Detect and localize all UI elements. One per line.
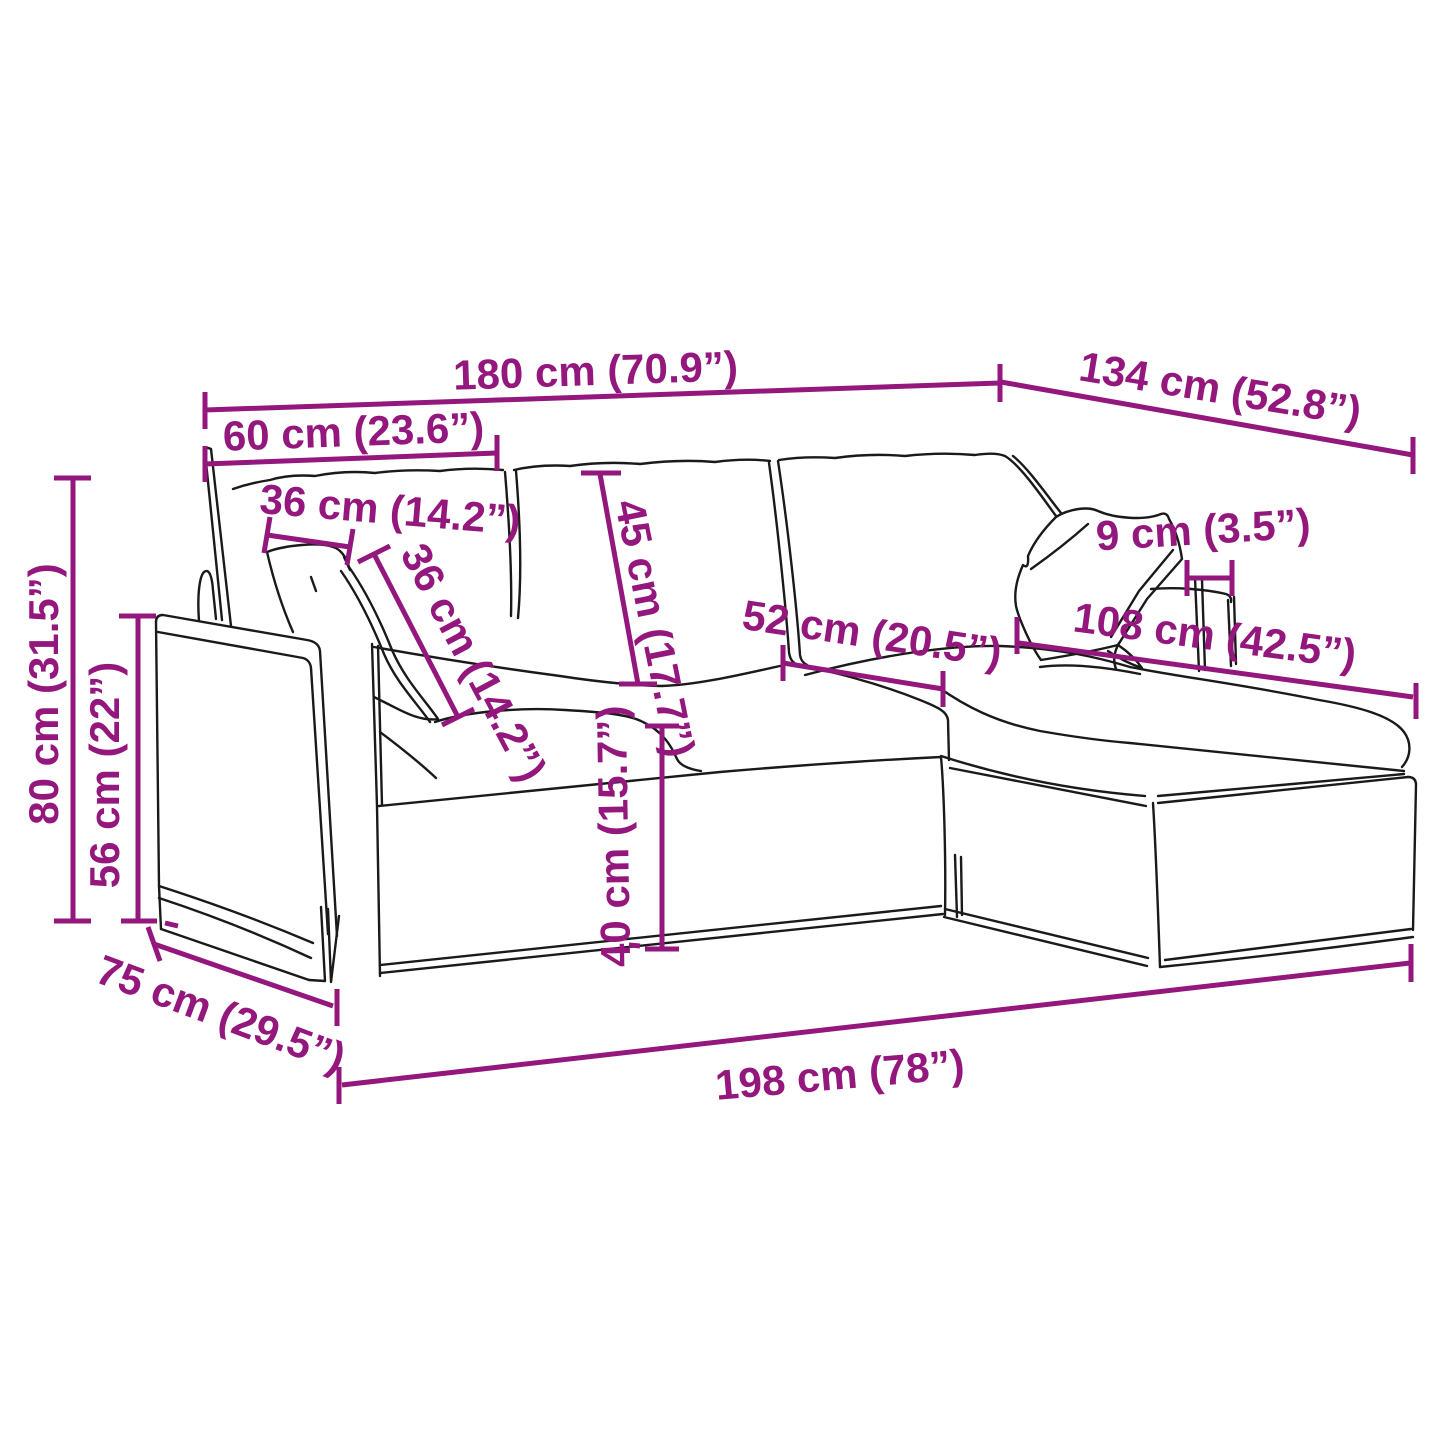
svg-text:80 cm (31.5”): 80 cm (31.5”) [20, 563, 67, 824]
svg-text:60 cm (23.6”): 60 cm (23.6”) [222, 403, 485, 460]
svg-text:198 cm (78”): 198 cm (78”) [713, 1040, 966, 1109]
svg-text:36 cm (14.2”): 36 cm (14.2”) [392, 536, 556, 789]
svg-text:52 cm (20.5”): 52 cm (20.5”) [739, 591, 1005, 676]
svg-text:40 cm (15.7”): 40 cm (15.7”) [588, 705, 640, 967]
svg-text:180 cm (70.9”): 180 cm (70.9”) [452, 342, 738, 398]
svg-text:56 cm (22”): 56 cm (22”) [81, 662, 128, 888]
svg-text:9 cm (3.5”): 9 cm (3.5”) [1094, 500, 1311, 560]
svg-text:36 cm (14.2”): 36 cm (14.2”) [258, 475, 523, 544]
